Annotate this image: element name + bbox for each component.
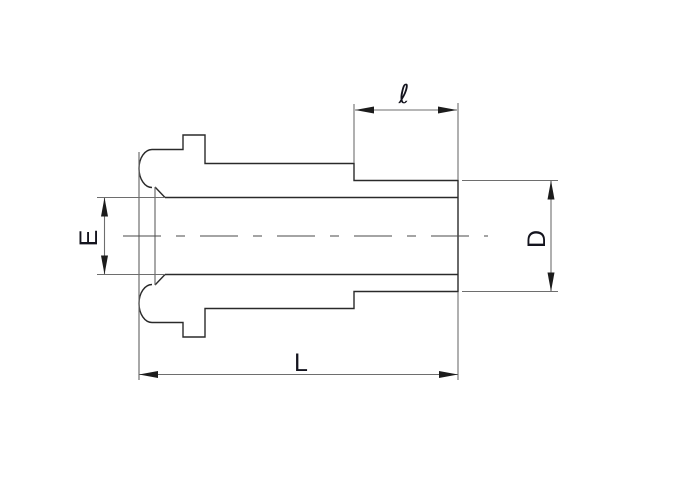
D-arrow-down <box>548 273 555 292</box>
seal-bead-bottom-arc <box>139 285 152 323</box>
D-dimension-label: D <box>523 230 551 248</box>
dimension-lines-group <box>97 103 558 380</box>
D-arrow-up <box>548 181 555 200</box>
L-arrow-right <box>439 371 458 378</box>
drawing-canvas: ℓ E D L <box>0 0 694 489</box>
ell-arrow-left <box>355 107 374 114</box>
fitting-technical-drawing: ℓ E D L <box>0 0 694 489</box>
ell-arrow-right <box>438 107 457 114</box>
E-arrow-up <box>101 198 108 217</box>
L-arrow-left <box>139 371 158 378</box>
seal-bead-top-arc <box>139 150 152 188</box>
E-arrow-down <box>101 256 108 275</box>
ell-dimension-label: ℓ <box>398 80 410 110</box>
E-dimension-label: E <box>75 230 103 247</box>
L-dimension-label: L <box>294 349 308 377</box>
bore-chamfer-top <box>155 187 165 198</box>
bore-chamfer-bottom <box>155 275 165 286</box>
arrowheads-group <box>101 107 555 379</box>
